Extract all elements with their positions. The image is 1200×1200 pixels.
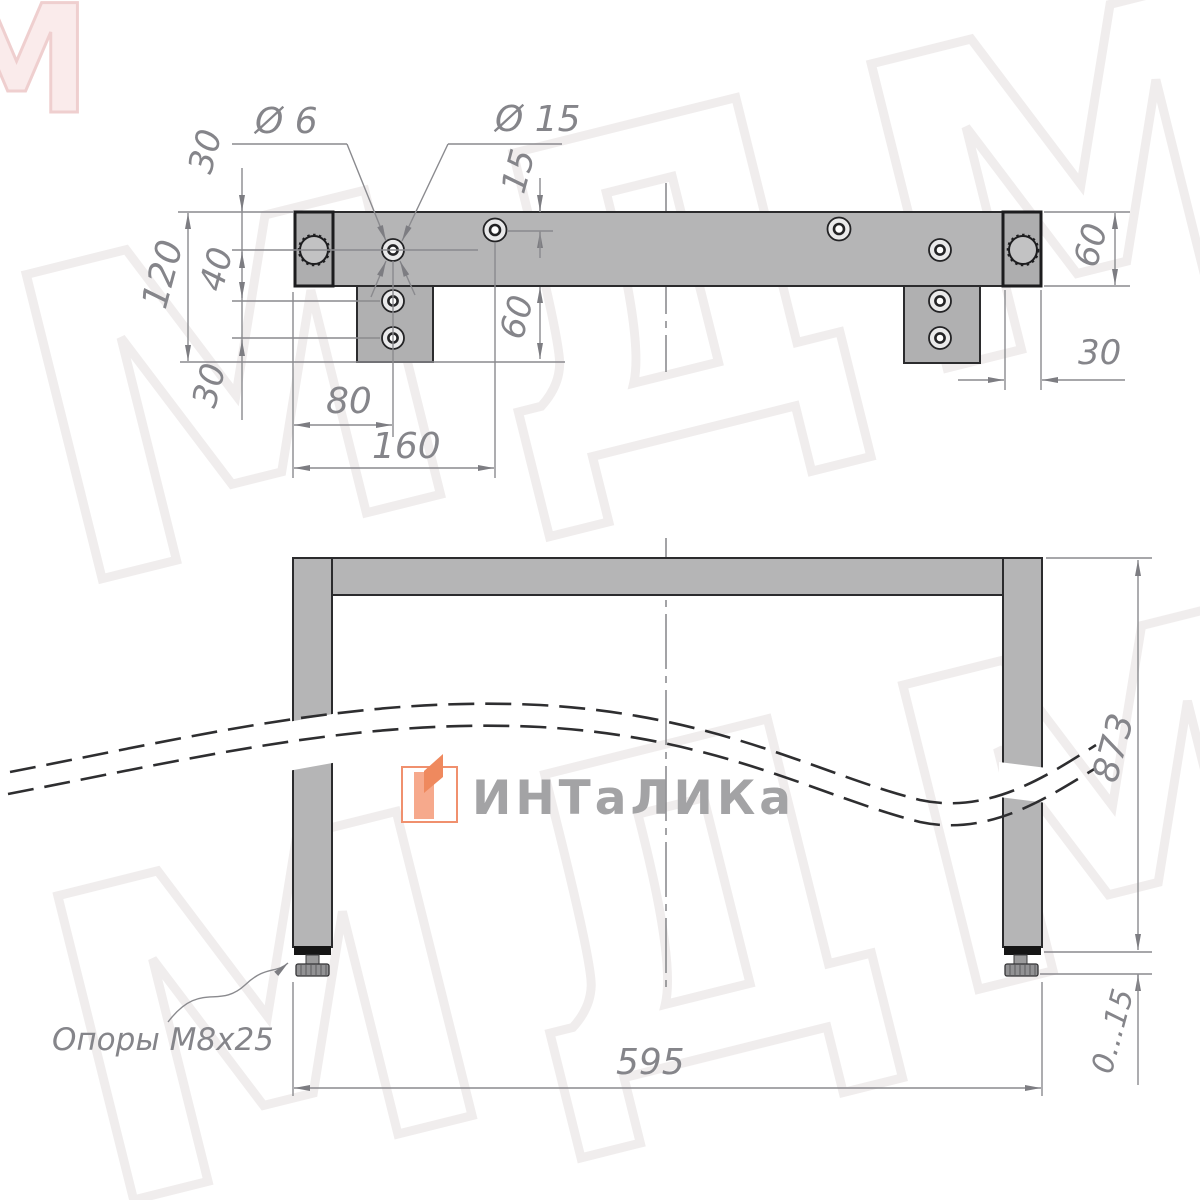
- dim-595-label: 595: [616, 1042, 685, 1083]
- dia-6-callout: Ø 6: [253, 101, 318, 142]
- left-leg-break: [288, 713, 338, 771]
- dim-160-label: 160: [372, 426, 441, 467]
- dim-30-right-label: 30: [1078, 333, 1121, 373]
- legs-callout-label: Опоры М8х25: [52, 1022, 274, 1058]
- right-knob-icon: [1008, 235, 1039, 266]
- logo-text: ИНТаЛИКа: [472, 771, 795, 826]
- top-rail: [293, 558, 1042, 595]
- right-leg: [1003, 558, 1042, 947]
- furniture-leg-drawing: МДМ МДМ М ИНТаЛИКа: [0, 0, 1200, 1200]
- technical-drawing-page: МДМ МДМ М ИНТаЛИКа: [0, 0, 1200, 1200]
- dia-15-callout: Ø 15: [493, 99, 581, 140]
- watermark-corner-letter: М: [0, 0, 91, 148]
- right-leg-break: [999, 762, 1047, 803]
- dim-80-label: 80: [326, 381, 372, 422]
